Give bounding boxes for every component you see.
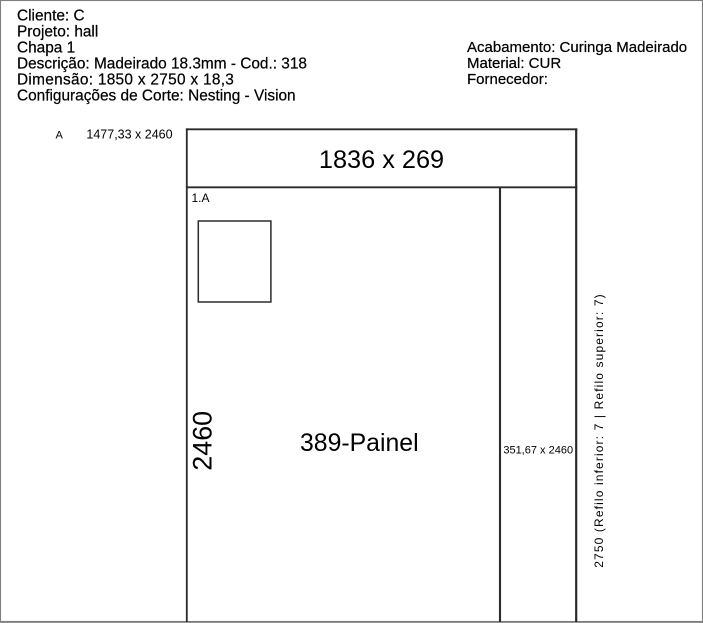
svg-text:351,67 x 2460: 351,67 x 2460: [503, 444, 573, 456]
svg-text:1477,33 x 2460: 1477,33 x 2460: [86, 128, 172, 142]
svg-text:Projeto: hall: Projeto: hall: [17, 24, 98, 41]
svg-text:A: A: [56, 130, 64, 142]
svg-text:389-Painel: 389-Painel: [300, 430, 419, 457]
svg-text:Dimensão: 1850 x 2750 x 18,3: Dimensão: 1850 x 2750 x 18,3: [17, 72, 234, 89]
svg-text:Descrição: Madeirado 18.3mm -: Descrição: Madeirado 18.3mm - Cod.: 318: [17, 56, 307, 73]
svg-text:Chapa 1: Chapa 1: [17, 40, 75, 57]
svg-text:Acabamento: Curinga Madeirado: Acabamento: Curinga Madeirado: [467, 39, 687, 56]
svg-text:2750 (Refilo inferior: 7 | Ref: 2750 (Refilo inferior: 7 | Refilo superi…: [592, 293, 606, 568]
svg-text:2460: 2460: [188, 411, 218, 471]
svg-text:Configurações de Corte: Nestin: Configurações de Corte: Nesting - Vision: [17, 88, 296, 105]
svg-text:Cliente: C: Cliente: C: [17, 8, 85, 25]
svg-text:Material: CUR: Material: CUR: [467, 55, 561, 72]
svg-text:Fornecedor:: Fornecedor:: [467, 71, 548, 88]
svg-text:1836 x 269: 1836 x 269: [319, 146, 444, 174]
svg-text:1.A: 1.A: [192, 191, 210, 205]
